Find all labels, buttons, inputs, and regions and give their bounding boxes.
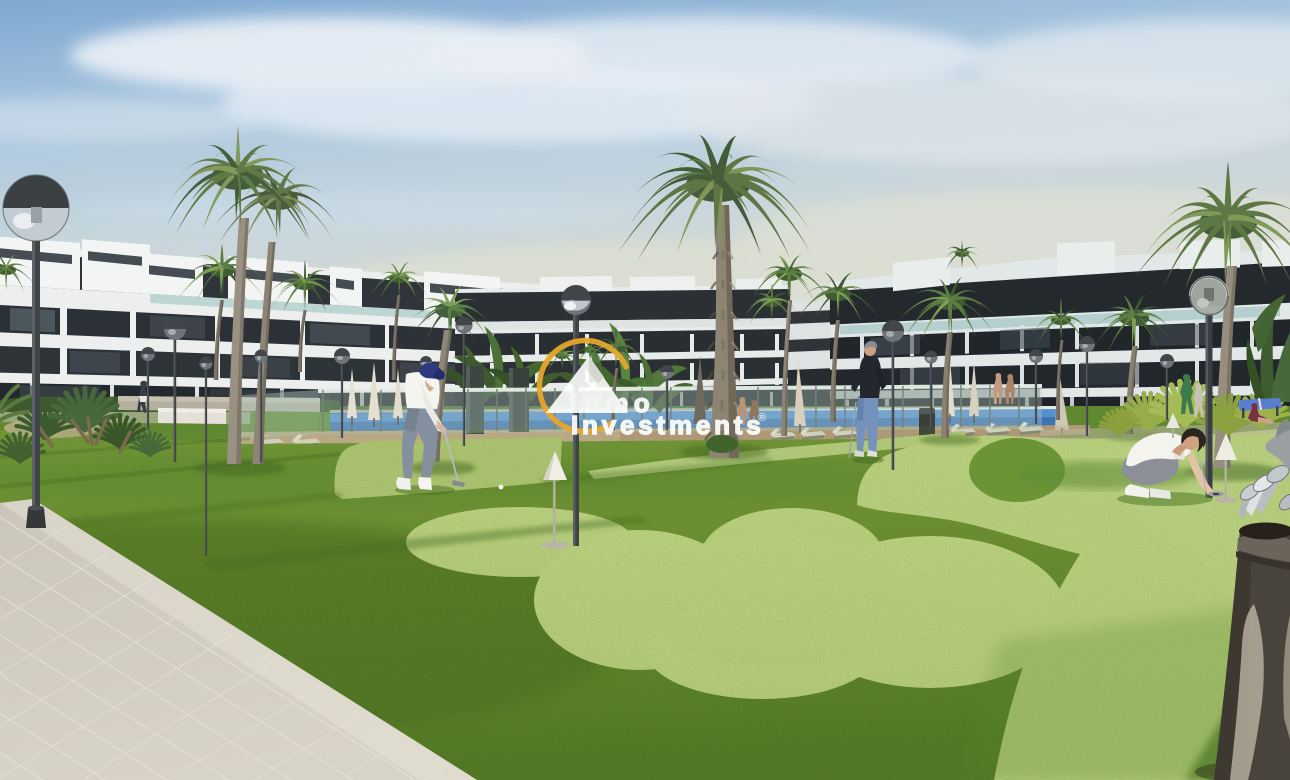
- svg-text:®: ®: [758, 412, 766, 424]
- svg-text:Investments: Investments: [571, 410, 765, 440]
